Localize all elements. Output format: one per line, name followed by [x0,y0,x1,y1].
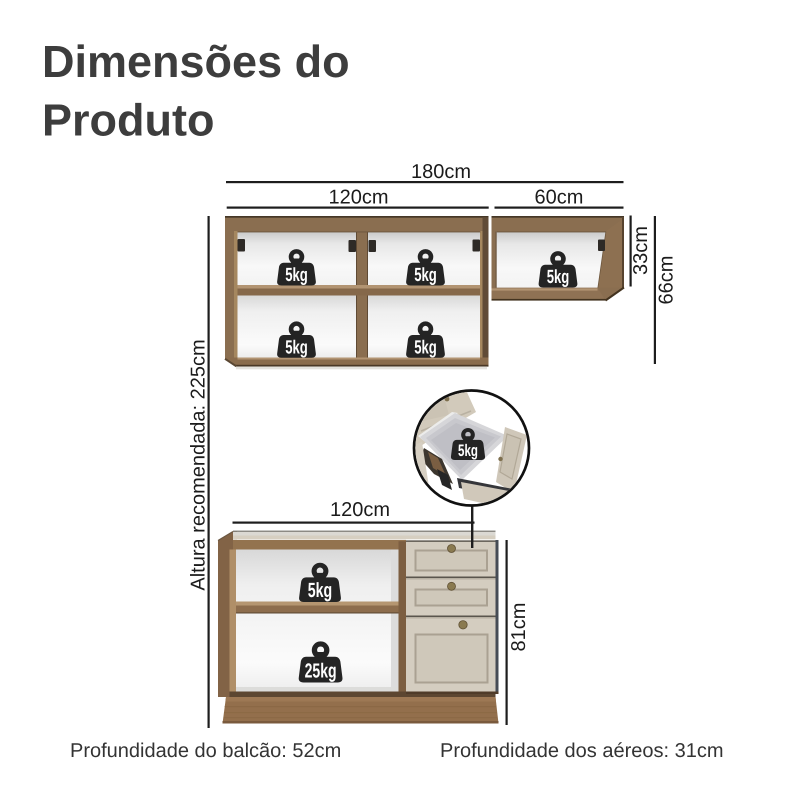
svg-text:66cm: 66cm [656,256,678,305]
svg-text:5kg: 5kg [285,265,308,286]
svg-text:5kg: 5kg [308,580,332,603]
svg-text:5kg: 5kg [458,442,478,460]
svg-text:81cm: 81cm [508,603,530,652]
svg-text:Profundidade dos aéreos: 31cm: Profundidade dos aéreos: 31cm [440,740,724,762]
svg-text:25kg: 25kg [305,659,337,682]
svg-text:5kg: 5kg [414,265,437,286]
svg-text:Profundidade do balcão: 52cm: Profundidade do balcão: 52cm [70,740,341,762]
svg-text:60cm: 60cm [535,187,584,209]
svg-text:33cm: 33cm [630,226,652,275]
svg-text:180cm: 180cm [411,161,471,183]
svg-text:5kg: 5kg [547,267,570,288]
svg-text:Dimensões do: Dimensões do [42,36,350,87]
svg-text:Altura recomendada: 225cm: Altura recomendada: 225cm [188,339,210,590]
svg-text:5kg: 5kg [285,337,308,358]
svg-text:120cm: 120cm [328,187,388,209]
svg-text:5kg: 5kg [414,337,437,358]
svg-text:Produto: Produto [42,95,214,146]
svg-text:120cm: 120cm [330,499,390,521]
